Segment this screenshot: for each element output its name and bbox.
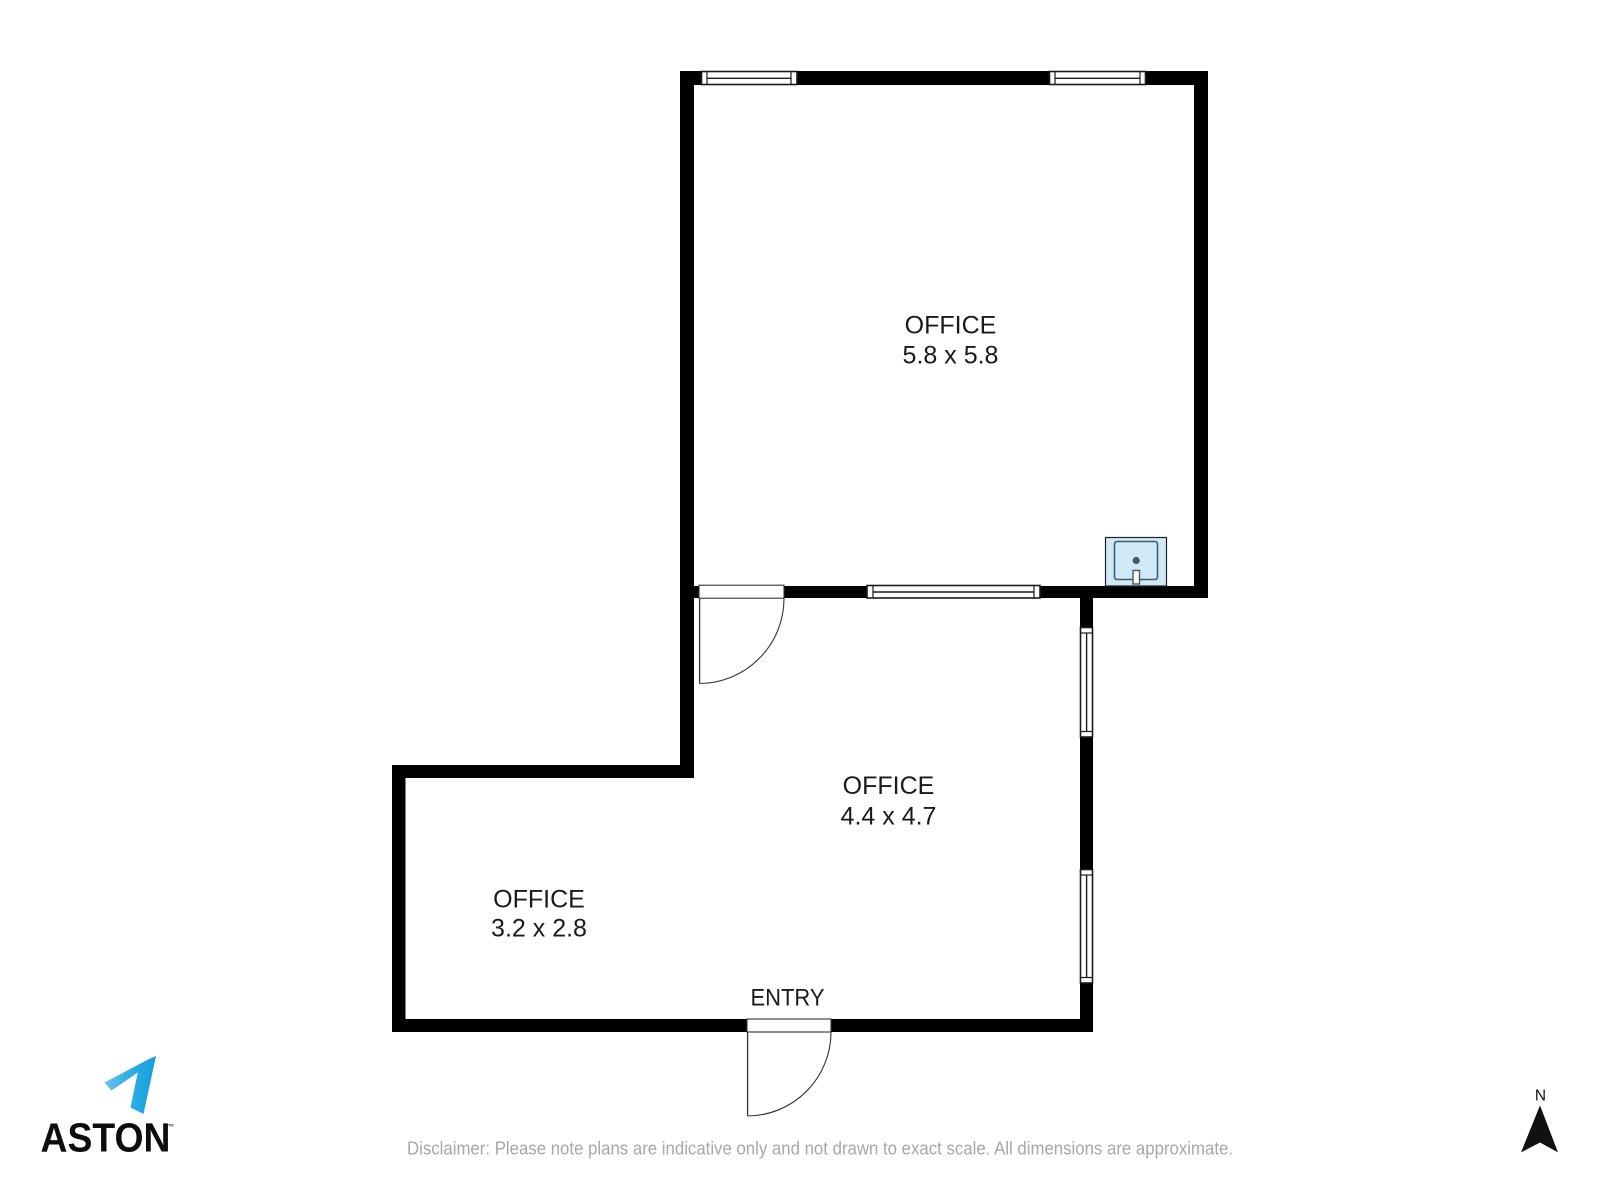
svg-text:Disclaimer: Please note plans: Disclaimer: Please note plans are indica… (407, 1138, 1233, 1159)
svg-text:OFFICE: OFFICE (493, 885, 585, 913)
svg-text:OFFICE: OFFICE (905, 311, 997, 339)
svg-text:ASTON: ASTON (41, 1114, 171, 1160)
svg-text:OFFICE: OFFICE (843, 772, 935, 800)
svg-text:5.8 x 5.8: 5.8 x 5.8 (903, 341, 999, 369)
svg-text:N: N (1535, 1088, 1546, 1105)
svg-text:ENTRY: ENTRY (751, 985, 825, 1012)
svg-text:4.4 x 4.7: 4.4 x 4.7 (841, 802, 937, 830)
svg-text:™: ™ (168, 1124, 175, 1131)
svg-text:3.2 x 2.8: 3.2 x 2.8 (491, 914, 587, 942)
